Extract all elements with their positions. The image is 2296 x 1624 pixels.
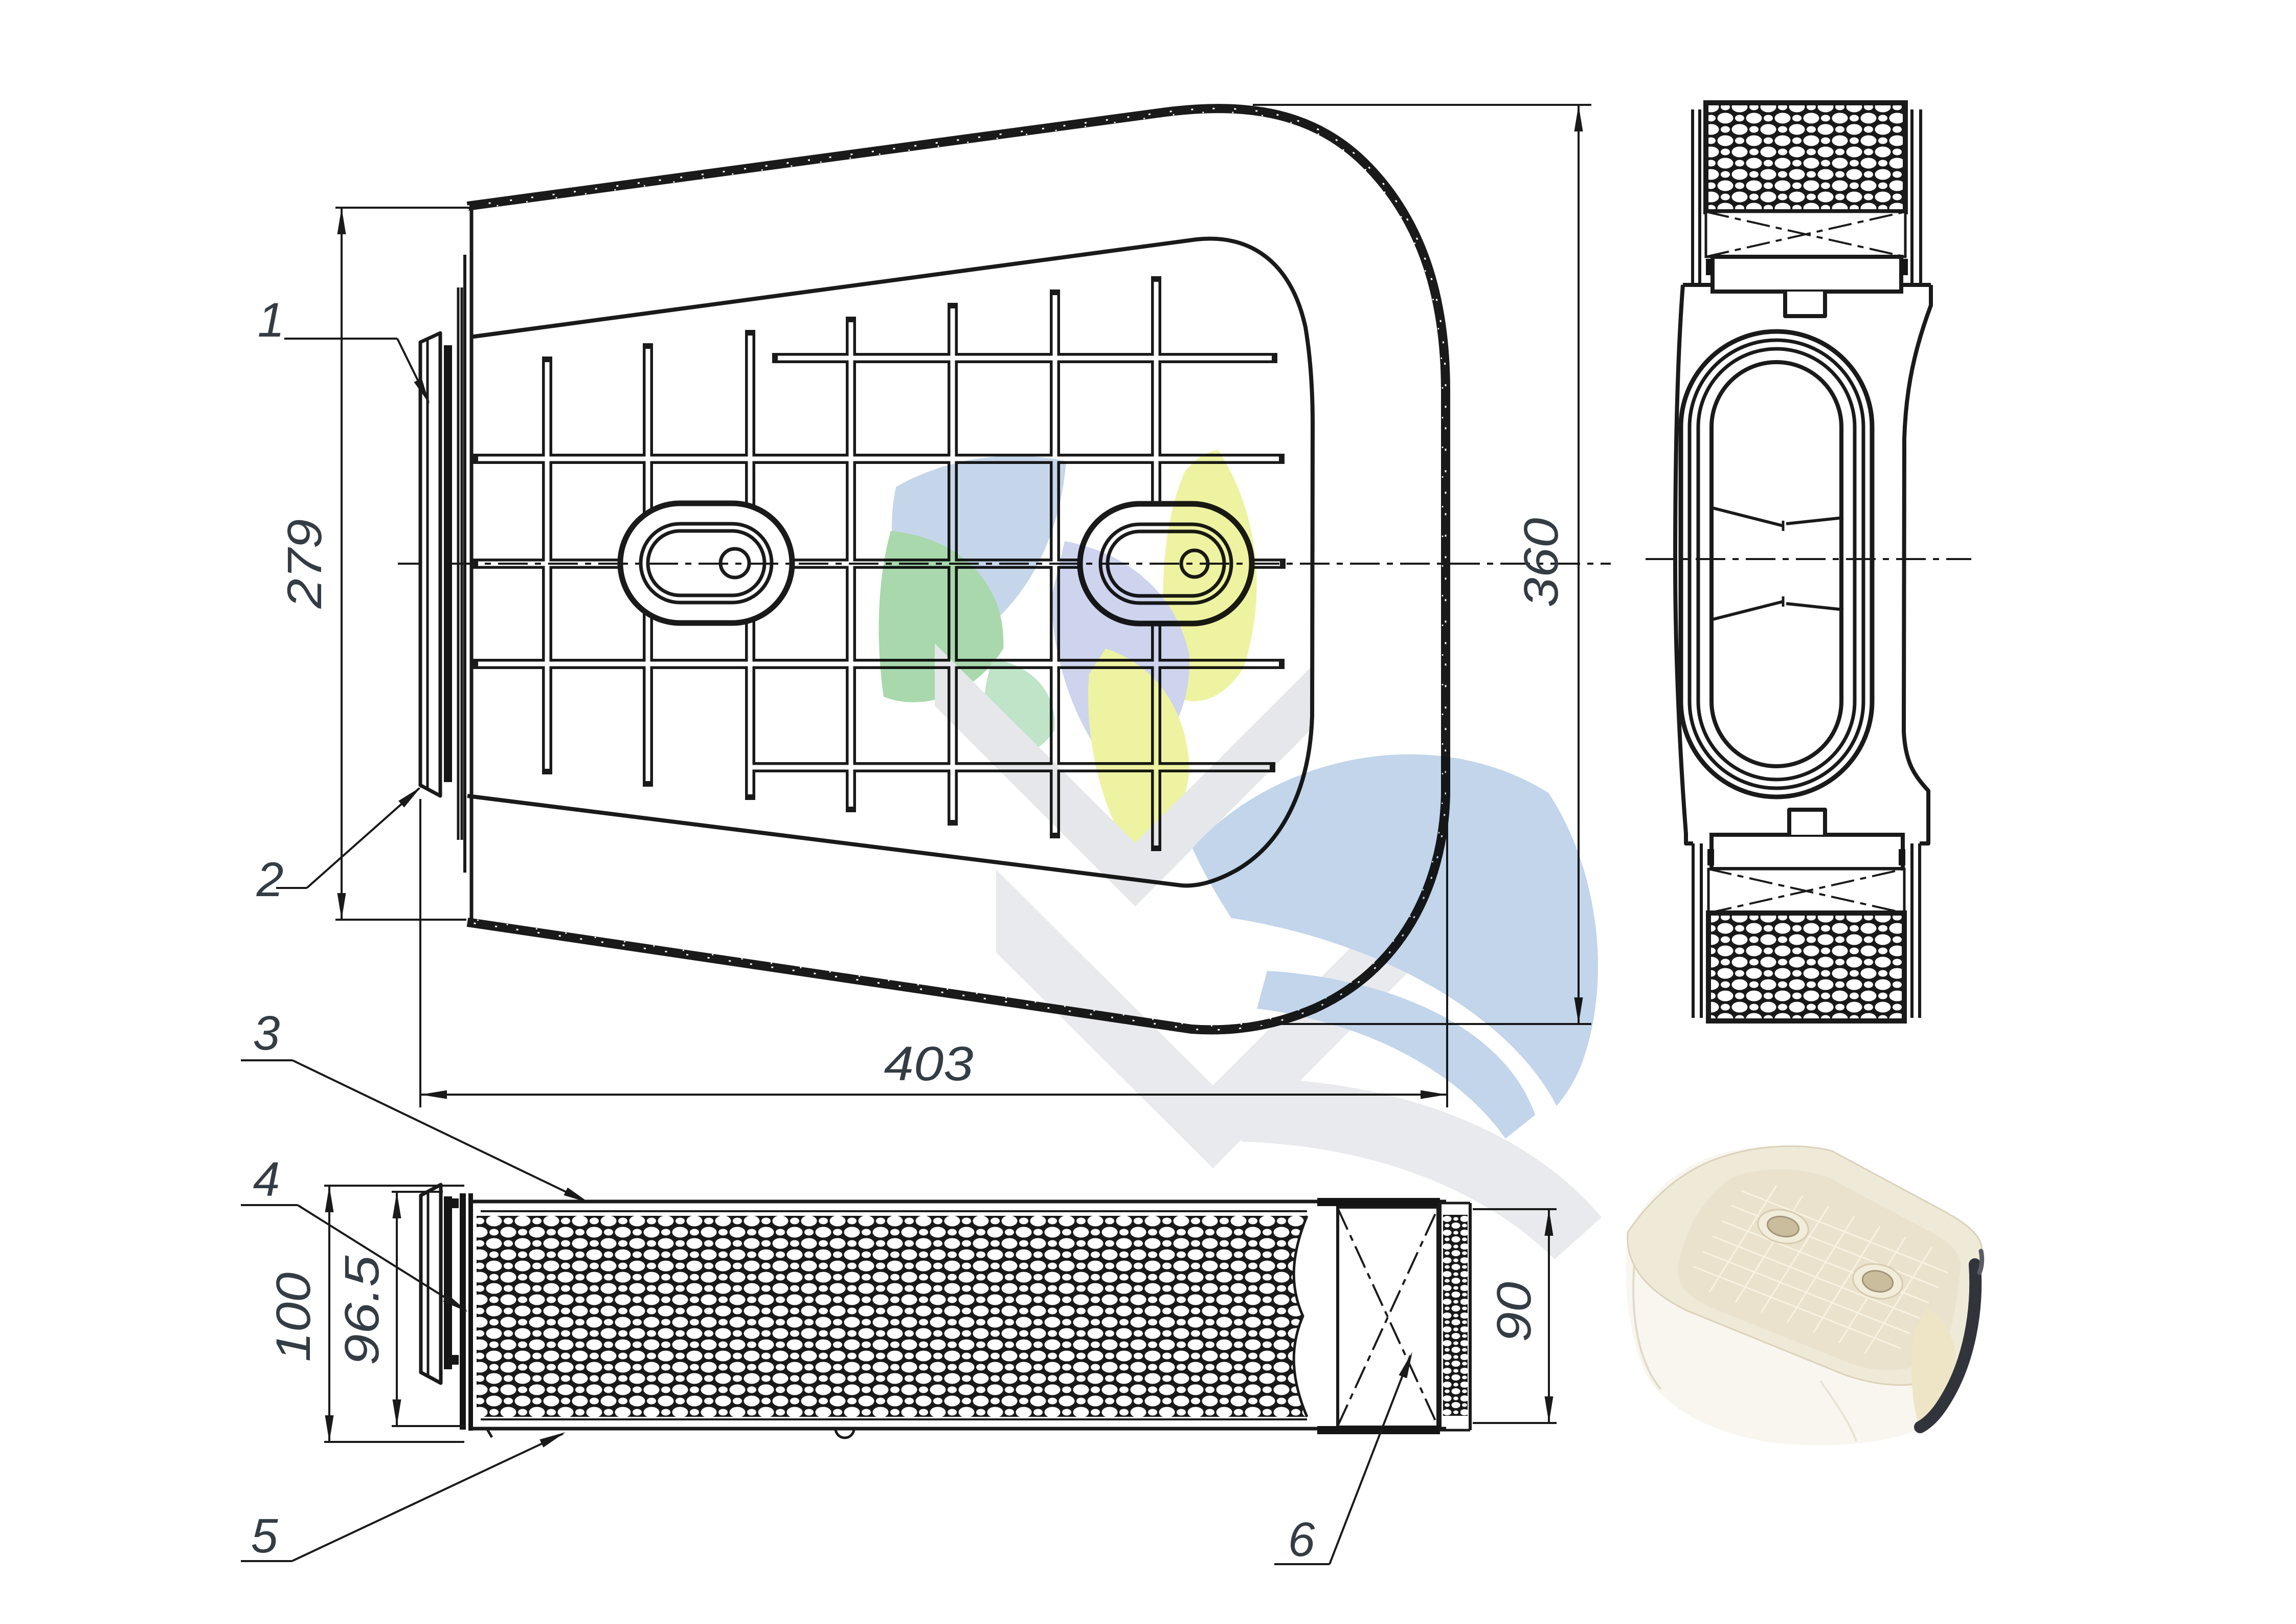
svg-text:90: 90 xyxy=(1487,1282,1541,1342)
svg-text:1: 1 xyxy=(258,293,285,347)
svg-text:4: 4 xyxy=(253,1152,280,1207)
svg-text:279: 279 xyxy=(278,519,332,609)
svg-text:96.5: 96.5 xyxy=(335,1255,389,1365)
svg-text:100: 100 xyxy=(266,1272,321,1362)
svg-text:2: 2 xyxy=(256,853,284,907)
svg-text:403: 403 xyxy=(884,1037,974,1091)
svg-text:6: 6 xyxy=(1288,1512,1315,1567)
svg-text:5: 5 xyxy=(251,1509,279,1563)
svg-text:360: 360 xyxy=(1514,518,1568,607)
svg-text:3: 3 xyxy=(253,1006,280,1060)
